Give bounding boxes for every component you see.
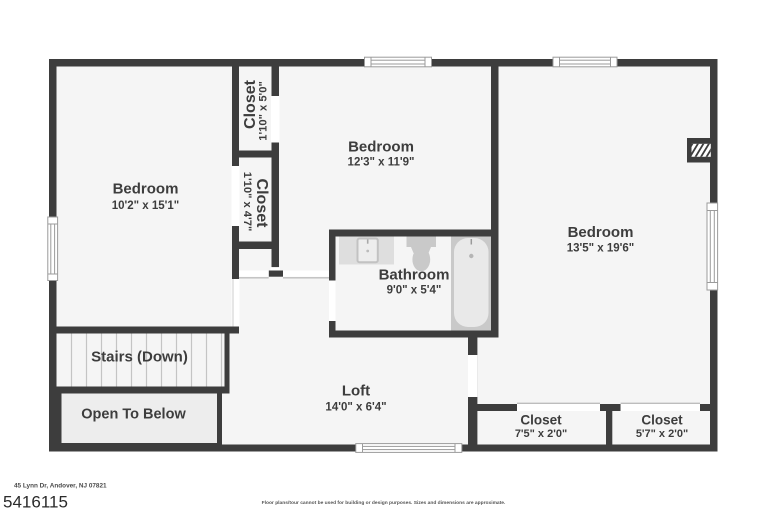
svg-text:Closet: Closet	[242, 79, 259, 129]
svg-text:Stairs (Down): Stairs (Down)	[91, 349, 188, 366]
svg-text:Closet: Closet	[253, 179, 270, 229]
svg-text:45 Lynn Dr, Andover, NJ 07821: 45 Lynn Dr, Andover, NJ 07821	[14, 483, 107, 490]
svg-text:Closet: Closet	[641, 413, 683, 428]
svg-text:Bathroom: Bathroom	[379, 267, 450, 284]
svg-text:5416115: 5416115	[3, 493, 68, 512]
svg-text:14'0" x 6'4": 14'0" x 6'4"	[325, 402, 386, 414]
svg-text:12'3" x 11'9": 12'3" x 11'9"	[348, 157, 415, 169]
svg-text:Closet: Closet	[520, 413, 562, 428]
svg-text:Bedroom: Bedroom	[568, 224, 634, 241]
svg-text:Floor plans/tour cannot be use: Floor plans/tour cannot be used for buil…	[262, 500, 506, 506]
svg-text:13'5" x 19'6": 13'5" x 19'6"	[567, 243, 635, 255]
svg-text:Loft: Loft	[342, 383, 370, 400]
svg-text:9'0" x 5'4": 9'0" x 5'4"	[387, 285, 442, 297]
svg-text:1'10" x 4'7": 1'10" x 4'7"	[241, 172, 253, 231]
svg-text:1'10" x 5'0": 1'10" x 5'0"	[258, 81, 270, 140]
svg-text:10'2" x 15'1": 10'2" x 15'1"	[112, 200, 180, 212]
svg-text:Bedroom: Bedroom	[348, 139, 414, 156]
svg-text:Bedroom: Bedroom	[113, 181, 179, 198]
svg-text:5'7" x 2'0": 5'7" x 2'0"	[636, 428, 688, 440]
svg-text:7'5" x 2'0": 7'5" x 2'0"	[515, 428, 567, 440]
svg-text:Open To Below: Open To Below	[81, 407, 186, 423]
